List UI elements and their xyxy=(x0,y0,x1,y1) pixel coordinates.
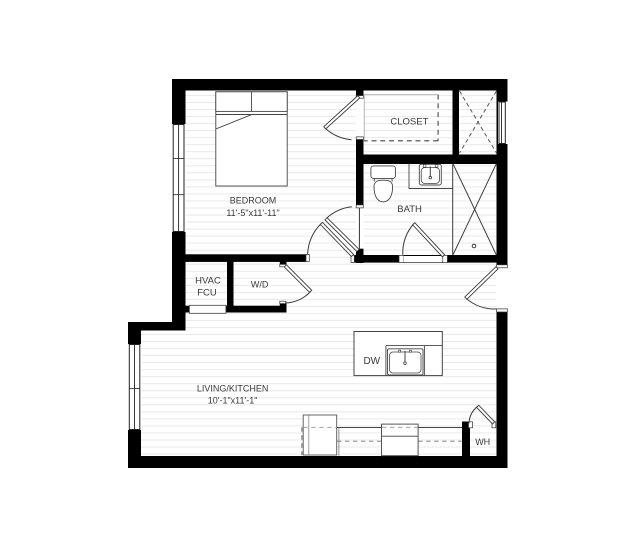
svg-text:WH: WH xyxy=(475,437,490,447)
svg-text:HVAC: HVAC xyxy=(195,275,221,286)
svg-text:W/D: W/D xyxy=(251,279,269,289)
svg-text:10'-1"x11'-1": 10'-1"x11'-1" xyxy=(208,395,258,405)
svg-text:LIVING/KITCHEN: LIVING/KITCHEN xyxy=(197,384,269,394)
svg-text:BEDROOM: BEDROOM xyxy=(230,195,277,205)
svg-text:DW: DW xyxy=(363,356,380,367)
svg-text:FCU: FCU xyxy=(197,288,217,299)
svg-text:CLOSET: CLOSET xyxy=(390,117,428,128)
svg-text:11'-5"x11'-11": 11'-5"x11'-11" xyxy=(226,208,279,218)
svg-text:BATH: BATH xyxy=(397,204,422,215)
